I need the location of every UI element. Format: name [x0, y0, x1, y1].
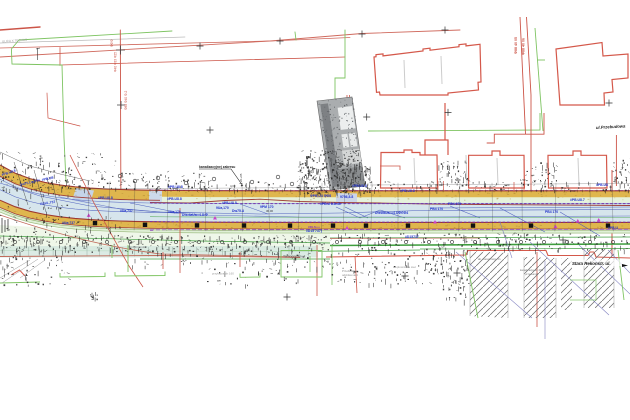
svg-text:DtsΦaUa•••4.UΦЄΦ4: DtsΦaUa•••4.UΦЄΦ4: [375, 211, 408, 215]
svg-text:cieplownicza siec: cieplownicza siec: [393, 265, 417, 269]
svg-text:2.00: 2.00: [570, 189, 576, 193]
svg-text:przylacza dn 160: przylacza dn 160: [212, 272, 234, 276]
svg-text:#D15 737): #D15 737): [306, 229, 322, 233]
svg-text:PB4 170: PB4 170: [545, 210, 558, 214]
svg-text:•••: •••: [150, 229, 153, 233]
svg-text:ab. kanalizacja dn: ab. kanalizacja dn: [478, 257, 501, 261]
svg-text:#Ua,737: #Ua,737: [120, 209, 133, 213]
svg-text:#Ua,170: #Ua,170: [168, 210, 181, 214]
svg-text:ΦPB,U4 ΦΦ8: ΦPB,U4 ΦΦ8: [310, 194, 331, 198]
svg-text:#PB.U8.8: #PB.U8.8: [167, 197, 182, 201]
svg-text:#PB.U: #PB.U: [608, 226, 619, 230]
svg-text:kanalizacyjnej zakresu: kanalizacyjnej zakresu: [199, 165, 235, 169]
svg-text:#D15737: #D15737: [405, 235, 419, 239]
svg-text:30.00: 30.00: [266, 209, 273, 213]
svg-text:Φ40 Φ33 Φ25: Φ40 Φ33 Φ25: [114, 52, 118, 72]
svg-text:prze kanal: prze kanal: [525, 272, 538, 276]
svg-text:#PB.U 8.8••8•: #PB.U 8.8••8•: [320, 202, 342, 206]
svg-text:#DLS••••: #DLS••••: [308, 225, 320, 229]
svg-text:20+05: 20+05: [239, 173, 243, 182]
svg-text:#PB.U8.8: #PB.U8.8: [222, 201, 237, 205]
svg-text:odcinka sieci: odcinka sieci: [342, 273, 358, 277]
svg-text:Stara Rekonstr. ul.: Stara Rekonstr. ul.: [572, 261, 611, 266]
svg-text:#PB.U8: #PB.U8: [596, 183, 608, 187]
svg-text:#PB.U8.8: #PB.U8.8: [400, 189, 415, 193]
svg-text:4.00: 4.00: [230, 184, 236, 188]
svg-text:32.08: 32.08: [435, 183, 442, 187]
svg-text:Dts•4aUa••4.8•Φ: Dts•4aUa••4.8•Φ: [182, 213, 208, 217]
svg-text:#PB.U8.7: #PB.U8.7: [570, 198, 585, 202]
svg-text:Φ88 40 05: Φ88 40 05: [514, 37, 518, 54]
svg-text:Dw75.U: Dw75.U: [232, 209, 245, 213]
svg-text:4.00: 4.00: [504, 183, 510, 187]
svg-text:5.00: 5.00: [455, 178, 461, 182]
svg-text:#PB/U8.8: #PB/U8.8: [352, 184, 367, 188]
svg-text:#PB.U8.8: #PB.U8.8: [168, 185, 183, 189]
svg-text:#PB.U8.8: #PB.U8.8: [98, 196, 113, 200]
svg-text:9Ua,170: 9Ua,170: [216, 206, 229, 210]
svg-text:Φ88 40 06: Φ88 40 06: [522, 38, 526, 55]
svg-text:9756,8.8: 9756,8.8: [340, 195, 353, 199]
svg-text:PB4 170: PB4 170: [430, 207, 443, 211]
svg-text:Φ88 Φ40 Φ-2: Φ88 Φ40 Φ-2: [124, 90, 128, 110]
svg-text:1.50: 1.50: [520, 178, 526, 182]
svg-text:ΦΦΦ: ΦΦΦ: [110, 39, 114, 47]
svg-text:PB4 170: PB4 170: [448, 202, 461, 206]
svg-text:#Ua•737: #Ua•737: [62, 221, 75, 225]
